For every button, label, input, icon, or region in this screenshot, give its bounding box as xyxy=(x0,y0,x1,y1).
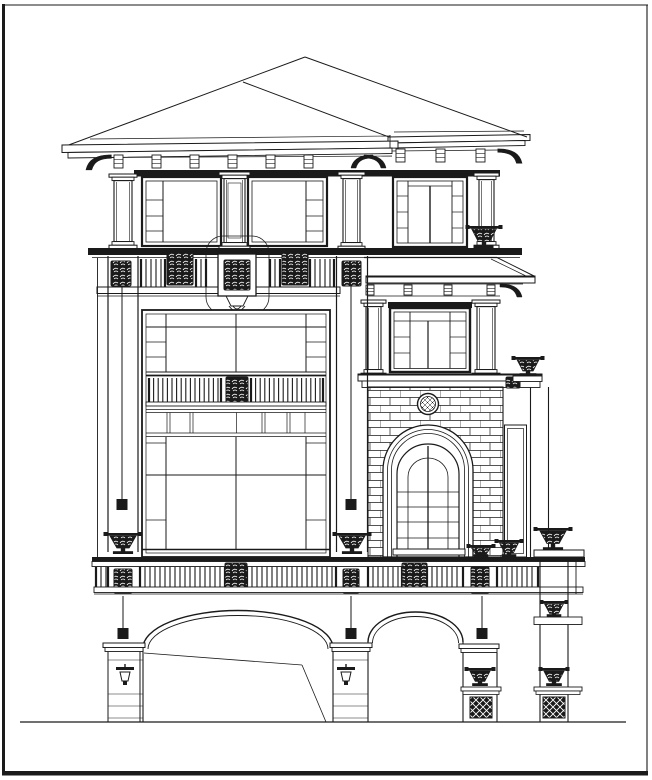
awning-hip-outer xyxy=(497,258,534,277)
lamp-pier-left xyxy=(116,667,134,670)
urn-terrace-right xyxy=(512,356,516,360)
drop-finial-lower-right xyxy=(477,628,488,639)
pilaster-3f-b xyxy=(224,179,245,243)
corner-cap-2 xyxy=(536,691,580,695)
window-3f-mid-frame xyxy=(248,177,327,246)
urn-balcony-right xyxy=(467,226,501,229)
crest-ornament xyxy=(224,260,250,290)
urn-balcony-right xyxy=(474,245,493,248)
awning-dentils xyxy=(444,285,452,295)
terrace-ornament-arch2 xyxy=(402,563,427,589)
garage-ramp-line2 xyxy=(302,665,326,722)
window-2f-right-frame xyxy=(390,308,470,372)
urn-pier-left xyxy=(110,536,136,548)
urn-corner-small xyxy=(495,539,499,543)
pier-cap-right-2 xyxy=(461,649,497,653)
roof-front-hip xyxy=(243,82,389,137)
urn-terrace-right-pedestal xyxy=(513,376,542,382)
urn-balcony-right xyxy=(499,225,503,229)
urn-pier-left xyxy=(113,551,133,554)
urn-corner-mid xyxy=(547,614,562,617)
urn-corner-face xyxy=(540,668,568,671)
column-2f-f xyxy=(472,300,500,303)
juliet-ornament xyxy=(226,377,248,403)
lamp-pier-left xyxy=(123,681,127,685)
urn-corner-large xyxy=(534,527,538,531)
urn-pier2-face xyxy=(466,668,494,671)
terrace-rail-bottom xyxy=(94,587,583,593)
garage-ramp-line1 xyxy=(144,653,302,665)
urn-pier-center xyxy=(334,533,370,536)
terrace-cap-band xyxy=(92,562,585,567)
lamp-pier-left xyxy=(120,672,130,681)
pilaster-3f-b xyxy=(219,172,250,175)
column-2f-e xyxy=(361,300,386,303)
urn-pier-left xyxy=(139,532,143,536)
dentils-front xyxy=(228,155,237,168)
urn-pier-left xyxy=(105,533,141,536)
awning-dentils xyxy=(487,285,495,295)
urn-corner-face xyxy=(546,683,562,686)
balcony-ornament-left xyxy=(167,252,193,285)
urn-pier-center xyxy=(342,551,362,554)
corner-pier-cap xyxy=(534,550,584,557)
urn-pier2-face xyxy=(492,667,496,671)
urn-pier-center xyxy=(368,532,372,536)
awning-dentils xyxy=(404,285,412,295)
dentils-front xyxy=(190,155,199,168)
column-2f-e xyxy=(364,370,383,374)
urn-terrace-right xyxy=(541,356,545,360)
urn-corner-large xyxy=(535,528,571,531)
corner-pier-band xyxy=(534,617,582,625)
urn-pier2-top xyxy=(467,544,471,548)
column-3f-d xyxy=(474,173,499,176)
urn-pier2-face xyxy=(470,671,490,681)
sheet-border-left xyxy=(2,4,5,774)
column-3f-d xyxy=(477,242,496,246)
drop-finial-lower-left xyxy=(118,628,129,639)
arch2-inner xyxy=(373,617,459,644)
column-3f-a xyxy=(112,242,134,246)
roof-left-hip xyxy=(66,57,305,146)
urn-pier-left xyxy=(104,532,108,536)
urn-corner-small xyxy=(502,554,517,557)
roof-edge-right xyxy=(394,131,524,132)
drop-finial-center xyxy=(346,499,357,510)
crest-corbel xyxy=(226,296,248,306)
dentils-front xyxy=(266,155,275,168)
urn-corner-face xyxy=(539,667,543,671)
urn-terrace-right xyxy=(513,357,543,360)
pier-cap-center-2 xyxy=(332,648,370,652)
window-3f-left-frame xyxy=(142,177,221,246)
drop-finial-left xyxy=(117,499,128,510)
urn-corner-small xyxy=(496,540,522,543)
urn-corner-mid xyxy=(565,600,569,604)
column-2f-f xyxy=(475,370,497,374)
pier-ornament-center xyxy=(342,261,361,286)
dentils-front xyxy=(304,155,313,168)
urn-pier-center xyxy=(339,536,365,548)
dentils-front xyxy=(114,155,123,168)
elevation-drawing xyxy=(0,0,652,780)
urn-terrace-right xyxy=(517,360,539,371)
urn-pier2-face xyxy=(465,667,469,671)
urn-balcony-right xyxy=(466,225,470,229)
urn-corner-face xyxy=(544,671,564,681)
awning-hip-inner xyxy=(491,259,527,277)
column-3f-a xyxy=(109,174,137,177)
pier-cap-left-1 xyxy=(103,643,145,648)
urn-corner-mid xyxy=(545,604,564,613)
dentils-front xyxy=(152,155,161,168)
drop-finial-lower-center xyxy=(346,628,357,639)
terrace-ornament-arch1 xyxy=(225,563,247,589)
urn-pier2-top xyxy=(492,544,496,548)
urn-corner-mid xyxy=(541,601,567,604)
lamp-pier-center xyxy=(337,667,355,670)
floor3-head-band xyxy=(134,170,500,177)
pier-cap-center-1 xyxy=(330,643,372,648)
sheet-border-bottom xyxy=(2,771,648,776)
urn-pier2-top xyxy=(468,545,494,548)
corner-cap-1 xyxy=(534,687,582,691)
lamp-pier-center xyxy=(344,681,348,685)
urn-corner-large xyxy=(569,527,573,531)
terrace-rail-cap xyxy=(92,557,585,562)
pier-ornament-left xyxy=(111,261,131,286)
column-3f-c xyxy=(341,243,362,247)
lamp-pier-center xyxy=(341,672,351,681)
bracket-awning-right xyxy=(500,284,522,297)
dentils-right-wing xyxy=(396,149,405,162)
pier-cap-left-2 xyxy=(105,648,143,652)
pier-cap-right-1 xyxy=(459,644,499,649)
pilaster-3f-b xyxy=(222,243,247,247)
urn-pier2-face xyxy=(472,683,488,686)
pier2-cap-2 xyxy=(463,691,499,695)
pier2-lattice xyxy=(470,697,492,718)
urn-corner-small xyxy=(520,539,524,543)
juliet-rail-bottom xyxy=(146,402,326,406)
arched-window-sill xyxy=(393,549,465,555)
column-3f-c xyxy=(338,172,365,175)
roof-edge-front xyxy=(90,136,390,139)
wall-panel-right-inner xyxy=(508,429,524,554)
pier2-cap-1 xyxy=(461,687,501,691)
dentils-right-wing xyxy=(436,149,445,162)
bracket-eave-right xyxy=(498,149,522,163)
urn-pier2-top xyxy=(474,554,489,557)
dentils-right-wing xyxy=(476,149,485,162)
urn-corner-mid xyxy=(540,600,544,604)
drawing-sheet xyxy=(0,0,652,780)
roof-right-hip xyxy=(305,57,527,137)
bracket-eave-mid-right xyxy=(364,155,386,168)
urn-corner-large xyxy=(540,531,566,543)
balcony-ornament-right xyxy=(282,252,308,285)
urn-corner-face xyxy=(566,667,570,671)
urn-pier-center xyxy=(333,532,337,536)
arch1-outer xyxy=(143,611,333,649)
medallion-center xyxy=(421,397,436,412)
corner-lattice xyxy=(543,697,565,718)
